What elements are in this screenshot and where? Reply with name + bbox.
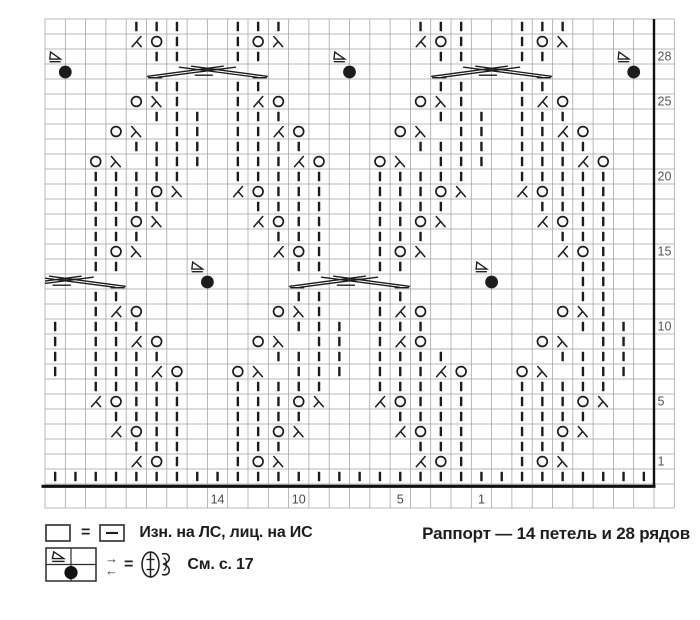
knit-stitch-bar — [460, 412, 462, 422]
right-leaning-decrease — [537, 367, 546, 377]
right-leaning-decrease — [598, 397, 607, 407]
knit-stitch-bar — [318, 472, 320, 482]
knit-stitch-bar — [176, 157, 178, 167]
knit-stitch-bar — [379, 292, 381, 302]
knit-stitch-bar — [561, 352, 563, 362]
knit-stitch-bar — [155, 172, 157, 182]
knit-stitch-bar — [237, 22, 239, 32]
knit-stitch-bar — [338, 472, 340, 482]
knit-stitch-bar — [95, 472, 97, 482]
yarn-over-circle — [131, 217, 141, 227]
knit-stitch-bar — [602, 232, 604, 242]
yarn-over-circle — [253, 37, 263, 47]
knit-stitch-bar — [298, 187, 300, 197]
knit-stitch-bar — [399, 232, 401, 242]
knit-stitch-bar — [176, 427, 178, 437]
knit-stitch-bar — [419, 412, 421, 422]
knit-stitch-bar — [602, 472, 604, 482]
knit-stitch-bar — [541, 472, 543, 482]
row-direction-arrows: → ← — [105, 553, 118, 577]
knit-stitch-bar — [561, 397, 563, 407]
knit-stitch-bar — [176, 397, 178, 407]
knit-stitch-bar — [95, 322, 97, 332]
knit-stitch-bar — [155, 82, 157, 92]
knit-stitch-bar — [237, 382, 239, 392]
left-leaning-decrease — [112, 307, 121, 317]
knit-stitch-bar — [440, 427, 442, 437]
knit-stitch-bar — [277, 187, 279, 197]
knit-stitch-bar — [155, 112, 157, 122]
yarn-over-circle — [253, 337, 263, 347]
knit-stitch-bar — [257, 22, 259, 32]
knit-stitch-bar — [155, 397, 157, 407]
col-label: 1 — [478, 493, 485, 507]
yarn-over-circle — [274, 427, 284, 437]
knit-stitch-bar — [460, 142, 462, 152]
knit-stitch-bar — [176, 172, 178, 182]
knit-stitch-bar — [115, 217, 117, 227]
left-leaning-decrease — [437, 367, 446, 377]
knit-stitch-bar — [155, 22, 157, 32]
knit-stitch-bar — [115, 382, 117, 392]
knit-stitch-bar — [460, 82, 462, 92]
knit-stitch-bar — [318, 322, 320, 332]
triangle-marker — [334, 52, 345, 62]
yarn-over-circle — [537, 187, 547, 197]
knit-stitch-bar — [440, 352, 442, 362]
yarn-over-circle — [537, 37, 547, 47]
right-leaning-decrease — [274, 337, 283, 347]
knit-stitch-bar — [379, 202, 381, 212]
knit-stitch-bar — [257, 52, 259, 62]
knit-stitch-bar — [135, 322, 137, 332]
knit-stitch-bar — [602, 247, 604, 257]
yarn-over-circle — [172, 367, 182, 377]
knit-stitch-bar — [135, 187, 137, 197]
knit-stitch-bar — [541, 142, 543, 152]
knit-stitch-bar — [561, 442, 563, 452]
knit-stitch-bar — [298, 472, 300, 482]
knit-stitch-bar — [115, 322, 117, 332]
left-leaning-decrease — [396, 337, 405, 347]
knit-stitch-bar — [399, 472, 401, 482]
knit-stitch-bar — [115, 262, 117, 272]
knit-stitch-bar — [115, 367, 117, 377]
yarn-over-circle — [517, 367, 527, 377]
knit-stitch-bar — [196, 472, 198, 482]
left-leaning-decrease — [91, 397, 100, 407]
left-leaning-decrease — [132, 37, 141, 47]
knit-stitch-bar — [155, 157, 157, 167]
knit-stitch-bar — [399, 292, 401, 302]
knit-stitch-bar — [561, 202, 563, 212]
knit-stitch-bar — [582, 277, 584, 287]
knit-stitch-bar — [602, 322, 604, 332]
knit-stitch-bar — [277, 382, 279, 392]
knit-stitch-bar — [521, 127, 523, 137]
knit-stitch-bar — [318, 202, 320, 212]
knit-stitch-bar — [379, 217, 381, 227]
knitting-chart: 282520151051141051 — [0, 0, 700, 516]
knit-stitch-bar — [440, 412, 442, 422]
knit-stitch-bar — [521, 142, 523, 152]
knit-stitch-bar — [399, 382, 401, 392]
knit-stitch-bar — [237, 82, 239, 92]
knit-stitch-bar — [541, 442, 543, 452]
knit-stitch-bar — [338, 337, 340, 347]
knit-stitch-bar — [602, 352, 604, 362]
left-leaning-decrease — [234, 187, 243, 197]
knit-stitch-bar — [237, 97, 239, 107]
yarn-over-circle — [416, 307, 426, 317]
knit-stitch-bar — [176, 97, 178, 107]
knit-stitch-bar — [541, 382, 543, 392]
knit-stitch-bar — [561, 112, 563, 122]
left-leaning-decrease — [152, 367, 161, 377]
triangle-marker — [50, 52, 61, 62]
ws-arrow-icon: ← — [105, 565, 118, 577]
knit-stitch-bar — [521, 427, 523, 437]
knit-stitch-bar — [399, 322, 401, 332]
knit-stitch-bar — [460, 157, 462, 167]
knit-stitch-bar — [318, 352, 320, 362]
knit-stitch-bar — [257, 472, 259, 482]
knit-stitch-bar — [602, 337, 604, 347]
knit-stitch-bar — [115, 172, 117, 182]
row-label: 10 — [658, 320, 672, 334]
knit-stitch-bar — [298, 292, 300, 302]
knit-stitch-bar — [440, 22, 442, 32]
right-leaning-decrease — [416, 247, 425, 257]
knit-stitch-bar — [318, 292, 320, 302]
knit-stitch-bar — [521, 412, 523, 422]
knit-stitch-bar — [440, 442, 442, 452]
knit-stitch-bar — [95, 337, 97, 347]
knit-stitch-bar — [257, 382, 259, 392]
knit-stitch-bar — [582, 472, 584, 482]
right-leaning-decrease — [416, 127, 425, 137]
knit-stitch-bar — [501, 472, 503, 482]
yarn-over-circle — [111, 397, 121, 407]
knit-stitch-bar — [561, 232, 563, 242]
right-leaning-decrease — [436, 97, 445, 107]
knit-stitch-bar — [155, 202, 157, 212]
knit-stitch-bar — [561, 157, 563, 167]
knit-stitch-bar — [155, 412, 157, 422]
knit-stitch-bar — [176, 382, 178, 392]
yarn-over-circle — [314, 157, 324, 167]
knit-stitch-bar — [237, 412, 239, 422]
knit-stitch-bar — [257, 142, 259, 152]
knit-stitch-bar — [135, 382, 137, 392]
right-leaning-decrease — [395, 157, 404, 167]
knit-stitch-bar — [521, 172, 523, 182]
knit-stitch-bar — [561, 187, 563, 197]
black-dot-marker — [627, 66, 640, 79]
knit-stitch-bar — [521, 472, 523, 482]
knit-stitch-bar — [582, 172, 584, 182]
knit-stitch-bar — [541, 22, 543, 32]
right-leaning-decrease — [274, 457, 283, 467]
knit-stitch-bar — [237, 472, 239, 482]
knit-stitch-bar — [521, 457, 523, 467]
yarn-over-circle — [416, 337, 426, 347]
yarn-over-circle — [294, 127, 304, 137]
knit-stitch-bar — [176, 442, 178, 452]
knit-stitch-bar — [602, 187, 604, 197]
knit-stitch-bar — [135, 397, 137, 407]
knit-stitch-bar — [602, 367, 604, 377]
knit-stitch-bar — [460, 172, 462, 182]
knit-stitch-bar — [95, 307, 97, 317]
knit-stitch-bar — [155, 382, 157, 392]
knit-stitch-bar — [318, 382, 320, 392]
knit-stitch-bar — [460, 37, 462, 47]
triangle-marker — [476, 262, 487, 272]
knit-stitch-bar — [277, 472, 279, 482]
right-leaning-decrease — [294, 427, 303, 437]
yarn-over-circle — [233, 367, 243, 377]
knit-stitch-bar — [379, 247, 381, 257]
knit-stitch-bar — [358, 472, 360, 482]
legend-row-purl: = Изн. на ЛС, лиц. на ИС — [45, 522, 312, 544]
yarn-over-circle — [274, 97, 284, 107]
knit-stitch-bar — [257, 112, 259, 122]
knit-stitch-bar — [399, 412, 401, 422]
knit-stitch-bar — [216, 472, 218, 482]
knit-stitch-bar — [196, 157, 198, 167]
knitting-pattern-page: 282520151051141051 = Изн. на ЛС, лиц. на… — [0, 0, 700, 620]
right-leaning-decrease — [172, 187, 181, 197]
knit-stitch-bar — [54, 472, 56, 482]
knit-stitch-bar — [602, 292, 604, 302]
knit-stitch-bar — [419, 187, 421, 197]
knit-stitch-bar — [399, 262, 401, 272]
knit-stitch-bar — [521, 82, 523, 92]
yarn-over-circle — [416, 217, 426, 227]
knit-stitch-bar — [460, 457, 462, 467]
knit-stitch-bar — [338, 322, 340, 332]
knit-stitch-bar — [419, 232, 421, 242]
left-leaning-decrease — [558, 247, 567, 257]
knit-stitch-bar — [379, 187, 381, 197]
knit-stitch-bar — [115, 292, 117, 302]
knit-stitch-bar — [95, 292, 97, 302]
knit-stitch-bar — [582, 187, 584, 197]
knit-stitch-bar — [419, 472, 421, 482]
left-leaning-decrease — [376, 397, 385, 407]
knit-stitch-bar — [277, 142, 279, 152]
left-leaning-decrease — [518, 187, 527, 197]
knit-stitch-bar — [419, 367, 421, 377]
yarn-over-circle — [131, 97, 141, 107]
knit-stitch-bar — [379, 367, 381, 377]
triangle-dot-cell-icon — [45, 547, 99, 583]
legend-row-special: → ← = См. с. 17 — [45, 547, 253, 583]
knit-stitch-bar — [379, 307, 381, 317]
skein-icon — [139, 549, 177, 581]
knit-stitch-bar — [399, 202, 401, 212]
yarn-over-circle — [598, 157, 608, 167]
knit-stitch-bar — [622, 472, 624, 482]
knit-stitch-bar — [135, 202, 137, 212]
knit-stitch-bar — [115, 187, 117, 197]
knit-stitch-bar — [622, 337, 624, 347]
knit-stitch-bar — [95, 202, 97, 212]
knit-stitch-bar — [419, 142, 421, 152]
knit-stitch-bar — [541, 202, 543, 212]
yarn-over-circle — [456, 367, 466, 377]
knit-stitch-bar — [602, 217, 604, 227]
knit-stitch-bar — [176, 472, 178, 482]
knit-stitch-bar — [622, 367, 624, 377]
knit-stitch-bar — [602, 307, 604, 317]
knit-stitch-bar — [155, 142, 157, 152]
knit-stitch-bar — [196, 142, 198, 152]
knit-stitch-bar — [582, 352, 584, 362]
knit-stitch-bar — [115, 352, 117, 362]
yarn-over-circle — [152, 337, 162, 347]
knit-stitch-bar — [460, 52, 462, 62]
knit-stitch-bar — [277, 202, 279, 212]
right-leaning-decrease — [578, 427, 587, 437]
yarn-over-circle — [375, 157, 385, 167]
knit-stitch-bar — [176, 112, 178, 122]
knit-stitch-bar — [541, 157, 543, 167]
dash-cell-icon — [99, 524, 126, 543]
knit-stitch-bar — [135, 412, 137, 422]
yarn-over-circle — [152, 187, 162, 197]
col-labels: 141051 — [211, 493, 485, 507]
knit-stitch-bar — [460, 397, 462, 407]
knit-stitch-bar — [176, 127, 178, 137]
knit-stitch-bar — [155, 52, 157, 62]
knit-stitch-bar — [582, 217, 584, 227]
knit-stitch-bar — [95, 187, 97, 197]
knit-stitch-bar — [521, 22, 523, 32]
knit-stitch-bar — [155, 352, 157, 362]
left-leaning-decrease — [254, 217, 263, 227]
knit-stitch-bar — [460, 22, 462, 32]
knit-stitch-bar — [480, 157, 482, 167]
knit-stitch-bar — [115, 202, 117, 212]
yarn-over-circle — [131, 307, 141, 317]
row-label: 15 — [658, 245, 672, 259]
knit-stitch-bar — [257, 202, 259, 212]
knit-stitch-bar — [237, 172, 239, 182]
knit-stitch-bar — [176, 22, 178, 32]
knit-stitch-bar — [277, 22, 279, 32]
yarn-over-circle — [558, 97, 568, 107]
knit-stitch-bar — [135, 232, 137, 242]
knit-stitch-bar — [237, 37, 239, 47]
knit-stitch-bar — [338, 352, 340, 362]
knit-stitch-bar — [582, 142, 584, 152]
knit-stitch-bar — [277, 352, 279, 362]
knit-stitch-bar — [541, 412, 543, 422]
right-leaning-decrease — [152, 217, 161, 227]
row-label: 20 — [658, 170, 672, 184]
knit-stitch-bar — [582, 262, 584, 272]
knit-stitch-bar — [521, 52, 523, 62]
yarn-over-circle — [294, 247, 304, 257]
knit-stitch-bar — [237, 457, 239, 467]
knit-stitch-bar — [399, 352, 401, 362]
knit-stitch-bar — [440, 142, 442, 152]
left-leaning-decrease — [254, 97, 263, 107]
left-leaning-decrease — [558, 127, 567, 137]
knit-stitch-bar — [257, 172, 259, 182]
knit-stitch-bar — [541, 82, 543, 92]
left-leaning-decrease — [416, 37, 425, 47]
knit-stitch-bar — [74, 472, 76, 482]
knit-stitch-bar — [237, 52, 239, 62]
knit-stitch-bar — [521, 382, 523, 392]
knit-stitch-bar — [521, 442, 523, 452]
knit-stitch-bar — [419, 352, 421, 362]
knit-stitch-bar — [582, 292, 584, 302]
empty-cell-icon — [45, 524, 72, 543]
yarn-over-circle — [253, 457, 263, 467]
knit-stitch-bar — [155, 442, 157, 452]
black-dot-marker — [201, 276, 214, 289]
knit-stitch-bar — [257, 127, 259, 137]
knit-stitch-bar — [582, 367, 584, 377]
knit-stitch-bar — [298, 232, 300, 242]
knit-stitch-bar — [460, 127, 462, 137]
knit-stitch-bar — [582, 232, 584, 242]
knit-stitch-bar — [440, 112, 442, 122]
knit-stitch-bar — [135, 472, 137, 482]
knit-stitch-bar — [521, 37, 523, 47]
knit-stitch-bar — [582, 412, 584, 422]
knit-stitch-bar — [318, 172, 320, 182]
knit-stitch-bar — [440, 172, 442, 182]
knit-stitch-bar — [622, 352, 624, 362]
knit-stitch-bar — [399, 187, 401, 197]
yarn-over-circle — [111, 127, 121, 137]
knit-stitch-bar — [257, 157, 259, 167]
knit-stitch-bar — [277, 157, 279, 167]
knit-stitch-bar — [135, 442, 137, 452]
yarn-over-circle — [537, 337, 547, 347]
knit-stitch-bar — [399, 367, 401, 377]
knit-stitch-bar — [54, 352, 56, 362]
right-leaning-decrease — [152, 97, 161, 107]
knit-stitch-bar — [257, 427, 259, 437]
knit-stitch-bar — [602, 277, 604, 287]
knit-stitch-bar — [419, 172, 421, 182]
yarn-over-circle — [537, 457, 547, 467]
knit-stitch-bar — [541, 397, 543, 407]
right-leaning-decrease — [558, 337, 567, 347]
left-leaning-decrease — [132, 457, 141, 467]
knit-stitch-bar — [277, 172, 279, 182]
knit-stitch-bar — [135, 172, 137, 182]
yarn-over-circle — [436, 187, 446, 197]
knit-stitch-bar — [480, 112, 482, 122]
knit-stitch-bar — [440, 397, 442, 407]
yarn-over-circle — [395, 397, 405, 407]
knit-stitch-bar — [561, 142, 563, 152]
legend-special-label: См. с. 17 — [187, 556, 253, 574]
knit-stitch-bar — [379, 472, 381, 482]
knit-stitch-bar — [460, 427, 462, 437]
knit-stitch-bar — [257, 82, 259, 92]
right-leaning-decrease — [294, 307, 303, 317]
knit-stitch-bar — [399, 172, 401, 182]
knit-stitch-bar — [277, 442, 279, 452]
